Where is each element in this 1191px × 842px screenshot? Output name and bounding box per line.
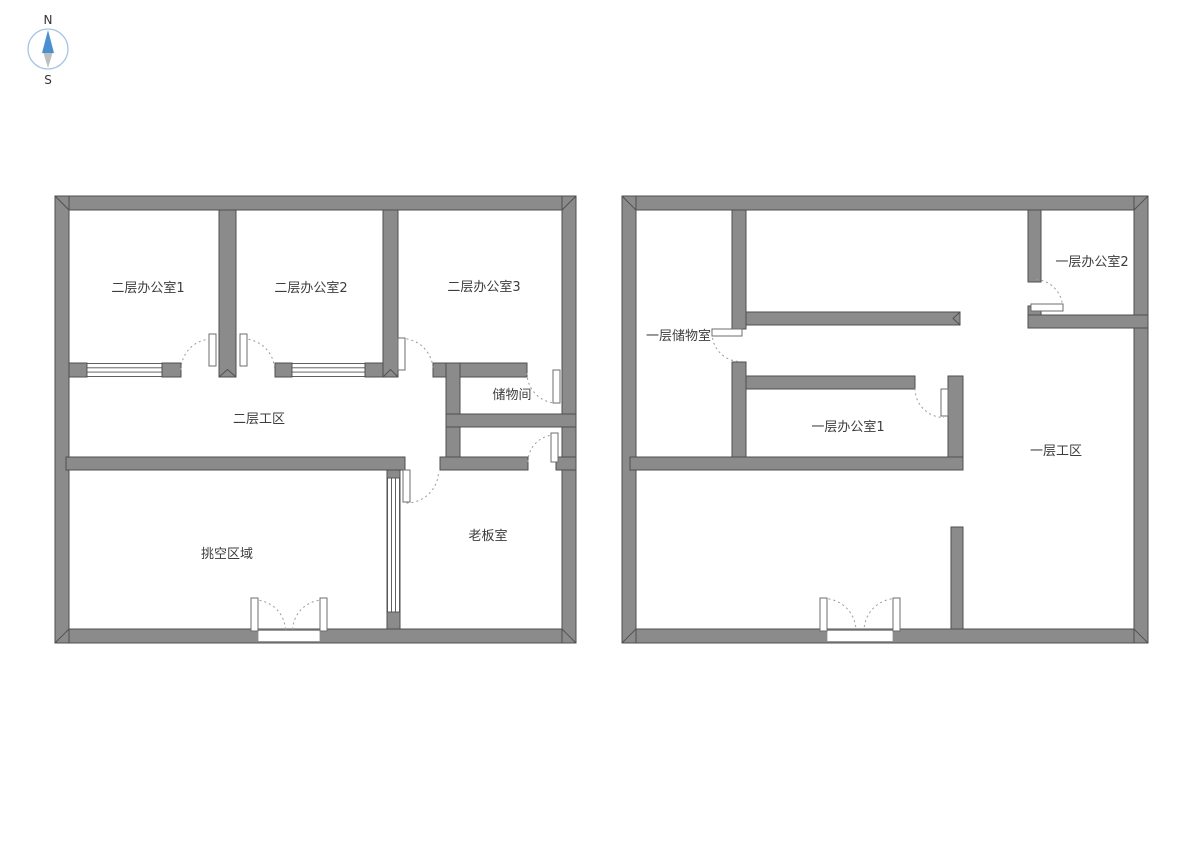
window [292, 364, 365, 377]
wall [556, 457, 576, 470]
wall [948, 376, 963, 470]
door-swing-arc [293, 600, 324, 631]
wall [732, 210, 746, 329]
room-label-f2-office1: 二层办公室1 [111, 280, 184, 296]
wall [732, 362, 746, 470]
wall [630, 457, 963, 470]
wall [622, 196, 636, 643]
door-swing-arc [824, 599, 857, 632]
wall [69, 363, 87, 377]
door-leaf [398, 338, 405, 370]
wall [55, 196, 576, 210]
wall [622, 196, 1148, 210]
room-label-f1-office2: 一层办公室2 [1055, 254, 1128, 270]
door-swing-arc [864, 599, 897, 632]
wall [275, 363, 292, 377]
double-door [251, 598, 327, 642]
door-leaf [209, 334, 216, 366]
door-swing-arc [181, 339, 212, 370]
room-label-f1-office1: 一层办公室1 [811, 419, 884, 435]
wall [383, 210, 398, 377]
door-leaf [403, 470, 410, 502]
wall [365, 363, 383, 377]
room-label-f2-void: 挑空区域 [201, 547, 253, 562]
window [388, 478, 400, 612]
room-label-f2-office3: 二层办公室3 [447, 279, 520, 295]
door-leaf [551, 433, 558, 462]
door-leaf [553, 370, 560, 403]
double-door [820, 598, 900, 642]
room-label-f2-storage: 储物间 [492, 388, 531, 403]
room-label-f1-work: 一层工区 [1030, 444, 1082, 459]
door-swing-arc [255, 600, 286, 631]
wall [162, 363, 181, 377]
door-leaf [941, 389, 948, 416]
door-threshold [258, 631, 320, 642]
room-label-f2-boss: 老板室 [468, 528, 507, 544]
wall [66, 457, 405, 470]
room-label-f2-office2: 二层办公室2 [274, 280, 347, 296]
wall [446, 414, 576, 427]
door-leaf [240, 334, 247, 366]
window [87, 364, 162, 377]
wall [440, 457, 528, 470]
door-swing-arc [402, 339, 434, 371]
wall [951, 527, 963, 629]
floor2-plan: 二层办公室1 二层办公室2 二层办公室3 二层工区 储物间 挑空区域 老板室 [55, 196, 576, 643]
room-label-f1-storage: 一层储物室 [646, 328, 711, 344]
wall [746, 376, 915, 389]
compass-north-label: N [44, 13, 53, 27]
door-leaf [893, 598, 900, 631]
floor1-plan: 一层储物室 一层办公室2 一层办公室1 一层工区 [622, 196, 1148, 643]
door-swing-arc [244, 339, 275, 370]
wall [219, 210, 236, 377]
door-leaf [712, 329, 742, 336]
wall [1134, 196, 1148, 643]
door-swing-arc [915, 389, 944, 418]
wall [1028, 315, 1148, 328]
door-leaf [320, 598, 327, 631]
door-leaf [251, 598, 258, 631]
room-label-f2-work: 二层工区 [233, 412, 285, 427]
door-threshold [827, 631, 893, 642]
compass-south-label: S [44, 73, 52, 87]
wall [55, 196, 69, 643]
wall [1028, 210, 1041, 282]
door-swing-arc [407, 471, 439, 503]
door-leaf [1031, 304, 1063, 311]
door-swing-arc [712, 333, 741, 362]
door-leaf [820, 598, 827, 631]
wall [746, 312, 960, 325]
floorplan-drawing: N S [0, 0, 1191, 842]
compass: N S [28, 13, 68, 87]
door-swing-arc [1035, 280, 1063, 308]
